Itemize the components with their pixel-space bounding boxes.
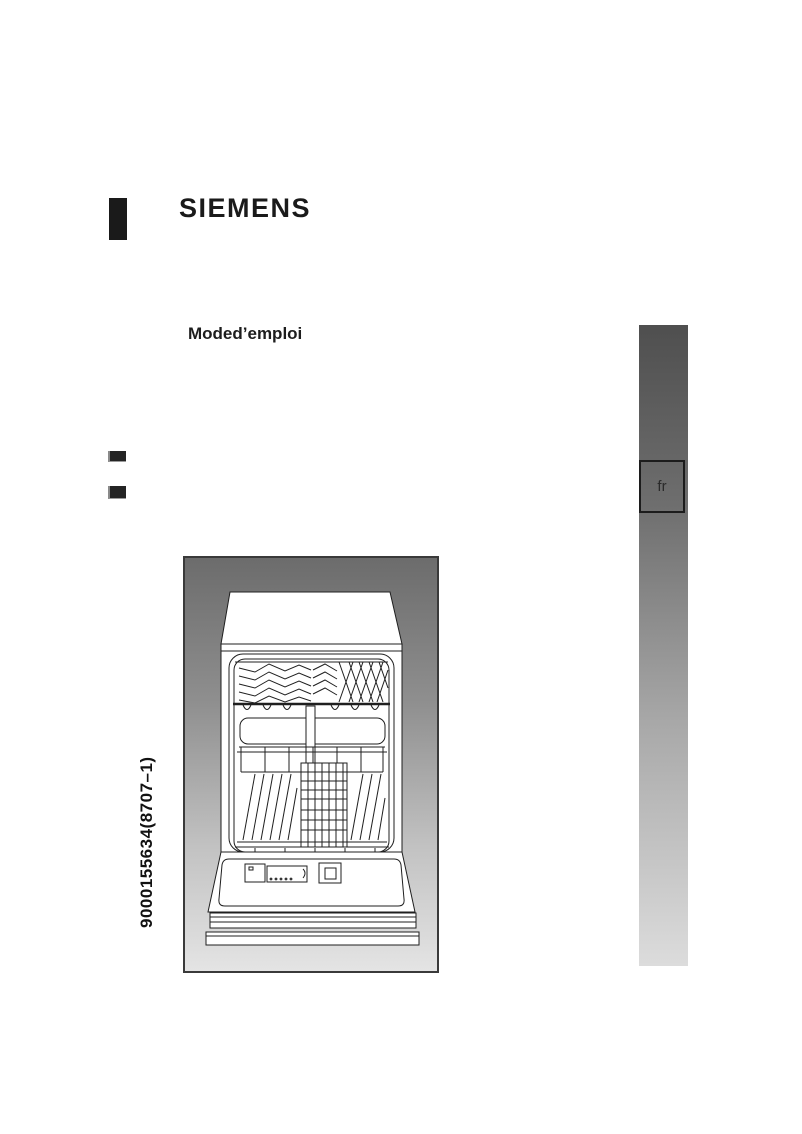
language-sidebar xyxy=(639,325,688,966)
page-title: Moded’emploi xyxy=(188,324,302,344)
dishwasher-illustration xyxy=(185,558,437,971)
manual-cover-page: { "document": { "brand": "SIEMENS", "sub… xyxy=(0,0,802,1134)
margin-bullet-1 xyxy=(108,451,126,462)
illustration-frame xyxy=(183,556,439,973)
margin-bullet-2 xyxy=(108,486,126,499)
order-code-vertical: 9000155634(8707–1) xyxy=(137,752,157,928)
language-tab-label: fr xyxy=(657,478,666,495)
brand-logo: SIEMENS xyxy=(179,193,311,224)
language-tab-fr: fr xyxy=(639,460,685,513)
logo-accent-bar xyxy=(109,198,127,240)
